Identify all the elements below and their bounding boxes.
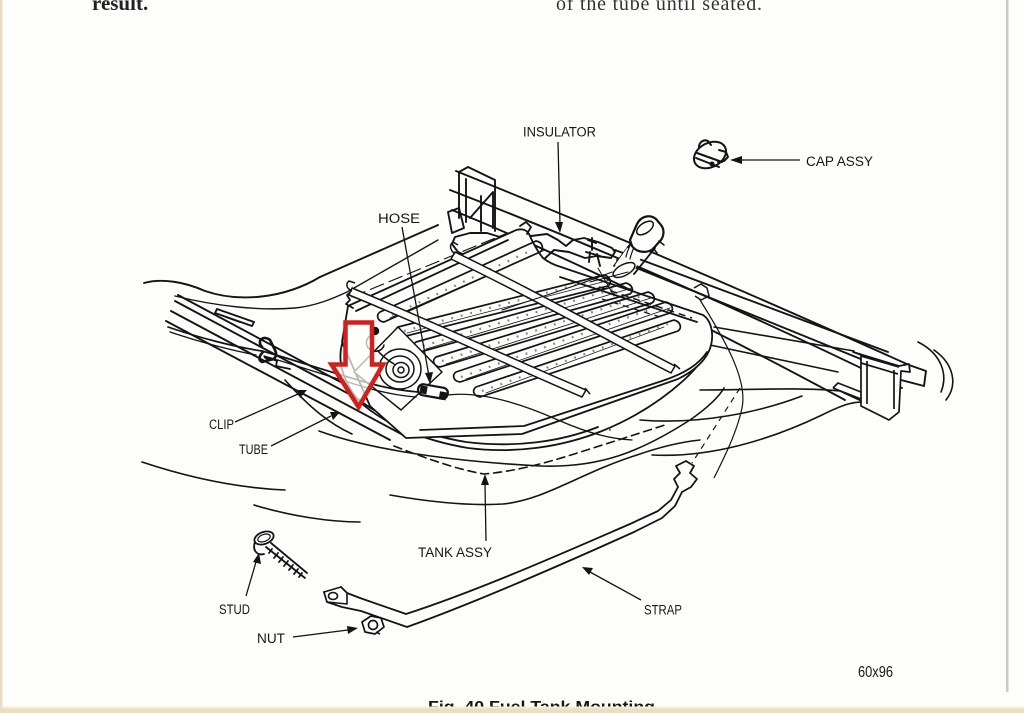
svg-text:of the tube until seated.: of the tube until seated.: [556, 0, 762, 15]
svg-text:INSULATOR: INSULATOR: [523, 125, 596, 140]
svg-text:STUD: STUD: [219, 602, 250, 617]
svg-text:TUBE: TUBE: [239, 442, 268, 457]
svg-text:CLIP: CLIP: [209, 417, 234, 432]
svg-text:CAP ASSY: CAP ASSY: [806, 154, 873, 169]
svg-text:NUT: NUT: [257, 631, 285, 646]
svg-text:TANK ASSY: TANK ASSY: [418, 545, 492, 560]
svg-text:HOSE: HOSE: [378, 211, 420, 226]
svg-text:60x96: 60x96: [858, 664, 893, 681]
svg-text:result.: result.: [92, 0, 148, 15]
svg-text:STRAP: STRAP: [644, 603, 682, 618]
